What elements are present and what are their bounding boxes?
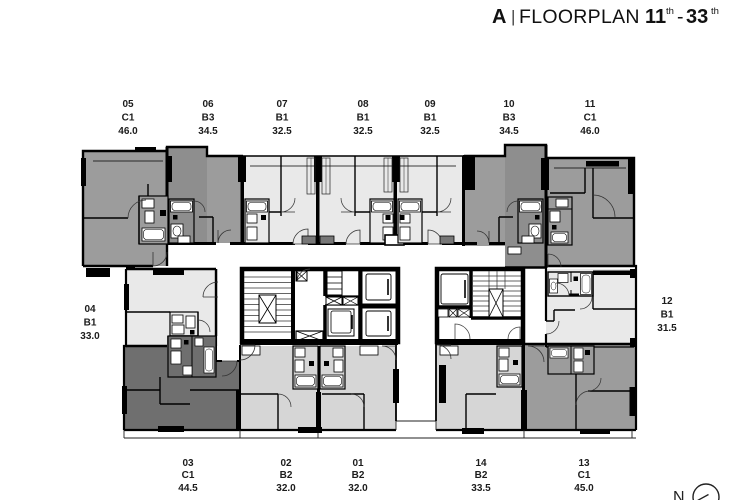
svg-text:14: 14	[475, 458, 487, 469]
svg-text:09: 09	[424, 99, 436, 110]
svg-text:46.0: 46.0	[118, 126, 138, 137]
svg-text:B2: B2	[280, 470, 293, 481]
svg-text:32.0: 32.0	[276, 483, 296, 494]
svg-text:B3: B3	[503, 113, 516, 124]
svg-text:N: N	[673, 489, 685, 500]
svg-text:07: 07	[276, 99, 288, 110]
svg-text:34.5: 34.5	[198, 126, 218, 137]
svg-text:34.5: 34.5	[499, 126, 519, 137]
svg-text:13: 13	[578, 458, 590, 469]
svg-text:32.0: 32.0	[348, 483, 368, 494]
svg-text:11: 11	[585, 99, 596, 110]
svg-text:C1: C1	[122, 113, 135, 124]
svg-text:B1: B1	[357, 113, 370, 124]
svg-text:C1: C1	[182, 470, 195, 481]
svg-text:11: 11	[645, 6, 666, 28]
svg-text:B2: B2	[352, 470, 365, 481]
svg-text:-: -	[677, 6, 684, 28]
svg-text:|: |	[511, 7, 515, 26]
svg-text:th: th	[666, 6, 674, 17]
svg-text:C1: C1	[584, 113, 597, 124]
svg-text:B1: B1	[661, 310, 674, 321]
svg-text:46.0: 46.0	[580, 126, 600, 137]
svg-text:44.5: 44.5	[178, 483, 198, 494]
svg-text:01: 01	[352, 458, 364, 469]
svg-text:B1: B1	[84, 318, 97, 329]
svg-text:32.5: 32.5	[420, 126, 440, 137]
svg-text:12: 12	[661, 296, 673, 307]
svg-text:02: 02	[280, 458, 292, 469]
svg-text:33: 33	[686, 6, 708, 28]
svg-text:08: 08	[357, 99, 369, 110]
svg-text:05: 05	[122, 99, 134, 110]
svg-text:10: 10	[503, 99, 515, 110]
svg-text:03: 03	[182, 458, 194, 469]
svg-text:B2: B2	[475, 470, 488, 481]
svg-text:B1: B1	[424, 113, 437, 124]
svg-text:31.5: 31.5	[657, 323, 677, 334]
svg-text:32.5: 32.5	[272, 126, 292, 137]
svg-text:33.0: 33.0	[80, 331, 100, 342]
svg-text:C1: C1	[578, 470, 591, 481]
svg-text:33.5: 33.5	[471, 483, 491, 494]
svg-text:45.0: 45.0	[574, 483, 594, 494]
svg-text:06: 06	[202, 99, 214, 110]
svg-text:th: th	[711, 6, 719, 17]
svg-text:FLOORPLAN: FLOORPLAN	[519, 6, 640, 28]
svg-text:04: 04	[84, 304, 96, 315]
svg-text:B1: B1	[276, 113, 289, 124]
svg-text:32.5: 32.5	[353, 126, 373, 137]
svg-text:A: A	[492, 6, 506, 28]
svg-text:B3: B3	[202, 113, 215, 124]
